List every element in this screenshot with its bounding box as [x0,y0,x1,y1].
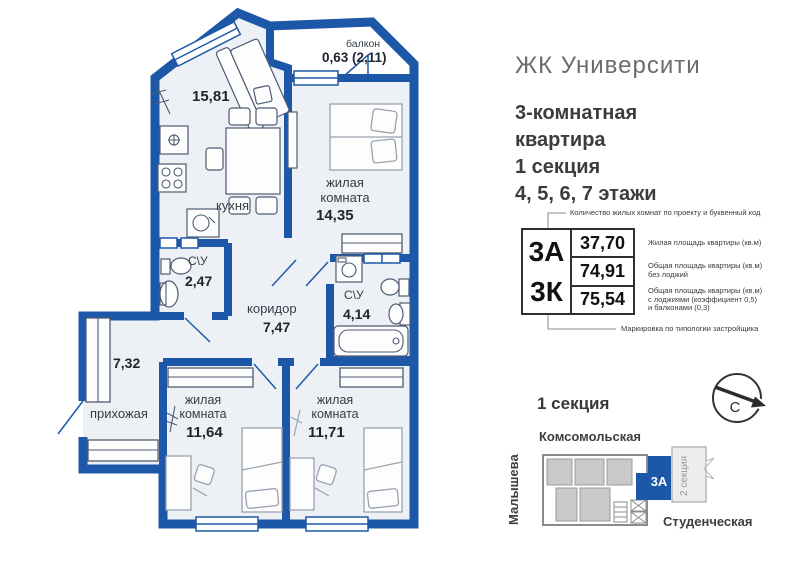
hall-label: прихожая [90,406,148,421]
balcony-area: 0,63 (2,11) [322,50,387,65]
section-title: 1 секция [515,156,600,179]
living1-area: 14,35 [316,207,354,224]
hall-area: 7,32 [113,355,140,371]
section2-label: 2 секция [679,452,695,500]
living1-bed [330,104,402,170]
living3-label: жилая комната [302,393,368,421]
spec-living-area: 37,70 [572,230,633,256]
leader-top [548,213,566,228]
kitchen-area: 15,81 [192,88,230,105]
bedroom2-wardrobe [340,368,403,387]
living1-wardrobe [342,234,402,253]
spec-total-area-balcony: 75,54 [572,285,633,313]
floors-title: 4, 5, 6, 7 этажи [515,183,657,206]
spec-values: 37,70 74,91 75,54 [572,230,633,313]
living2-label: жилая комната [170,393,236,421]
spec-code-cell: 3А 3К [523,230,572,313]
hall-shoe-rack [88,440,158,461]
annotation-living-area: Жилая площадь квартиры (кв.м) [648,239,761,248]
bedroom1-bed [242,428,282,512]
window-bath1-vent-1 [160,238,177,248]
window-bath1-vent-2 [181,238,198,248]
annotation-total-area-loggia-l3: и балконами (0,3) [648,304,762,313]
bath2-label: С\У [344,288,364,303]
annotation-total-area-loggia: Общая площадь квартиры (кв.м) с лоджиями… [648,287,762,313]
floor-plan-page: балкон 0,63 (2,11) 15,81 кухня жилая ком… [0,0,800,566]
annotation-rooms-code: Количество жилых комнат по проекту и бук… [570,209,760,218]
site-map-heading: 1 секция [537,394,609,414]
bath1-label: С\У [188,254,208,269]
apartment-type-title-2: квартира [515,129,606,152]
bath1-area: 2,47 [185,273,212,289]
street-komsomolskaya: Комсомольская [539,429,641,444]
complex-logo: ЖК Университи [515,52,701,80]
living3-area: 11,71 [308,424,345,441]
compass-north-label: С [726,399,744,416]
bedroom2-bed [364,428,402,512]
street-malysheva: Малышева [506,453,524,527]
bath2-area: 4,14 [343,306,370,322]
spec-code-top: 3А [529,232,565,272]
unit-badge: 3А [647,474,671,489]
annotation-marking: Маркировка по типологии застройщика [621,325,758,334]
spec-total-area: 74,91 [572,256,633,284]
spec-table: 3А 3К 37,70 74,91 75,54 [521,228,635,315]
annotation-total-area: Общая площадь квартиры (кв.м) без лоджий [648,262,762,279]
street-studencheskaya: Студенческая [663,514,752,529]
leader-bottom [548,315,616,329]
spec-code-bottom: 3К [530,272,563,312]
living2-area: 11,64 [186,424,223,441]
bedroom1-wardrobe [168,368,253,387]
corridor-area: 7,47 [263,319,290,335]
living1-label: жилая комната [312,175,378,205]
kitchen-label: кухня [216,198,249,213]
living1-radiator [288,112,297,168]
hall-wardrobe [86,318,110,402]
apartment-type-title: 3-комнатная [515,102,637,125]
annotation-total-area-l2: без лоджий [648,271,762,280]
section2-break-mark [704,458,714,479]
entrance-door-leaf [58,401,83,434]
corridor-label: коридор [247,301,297,316]
